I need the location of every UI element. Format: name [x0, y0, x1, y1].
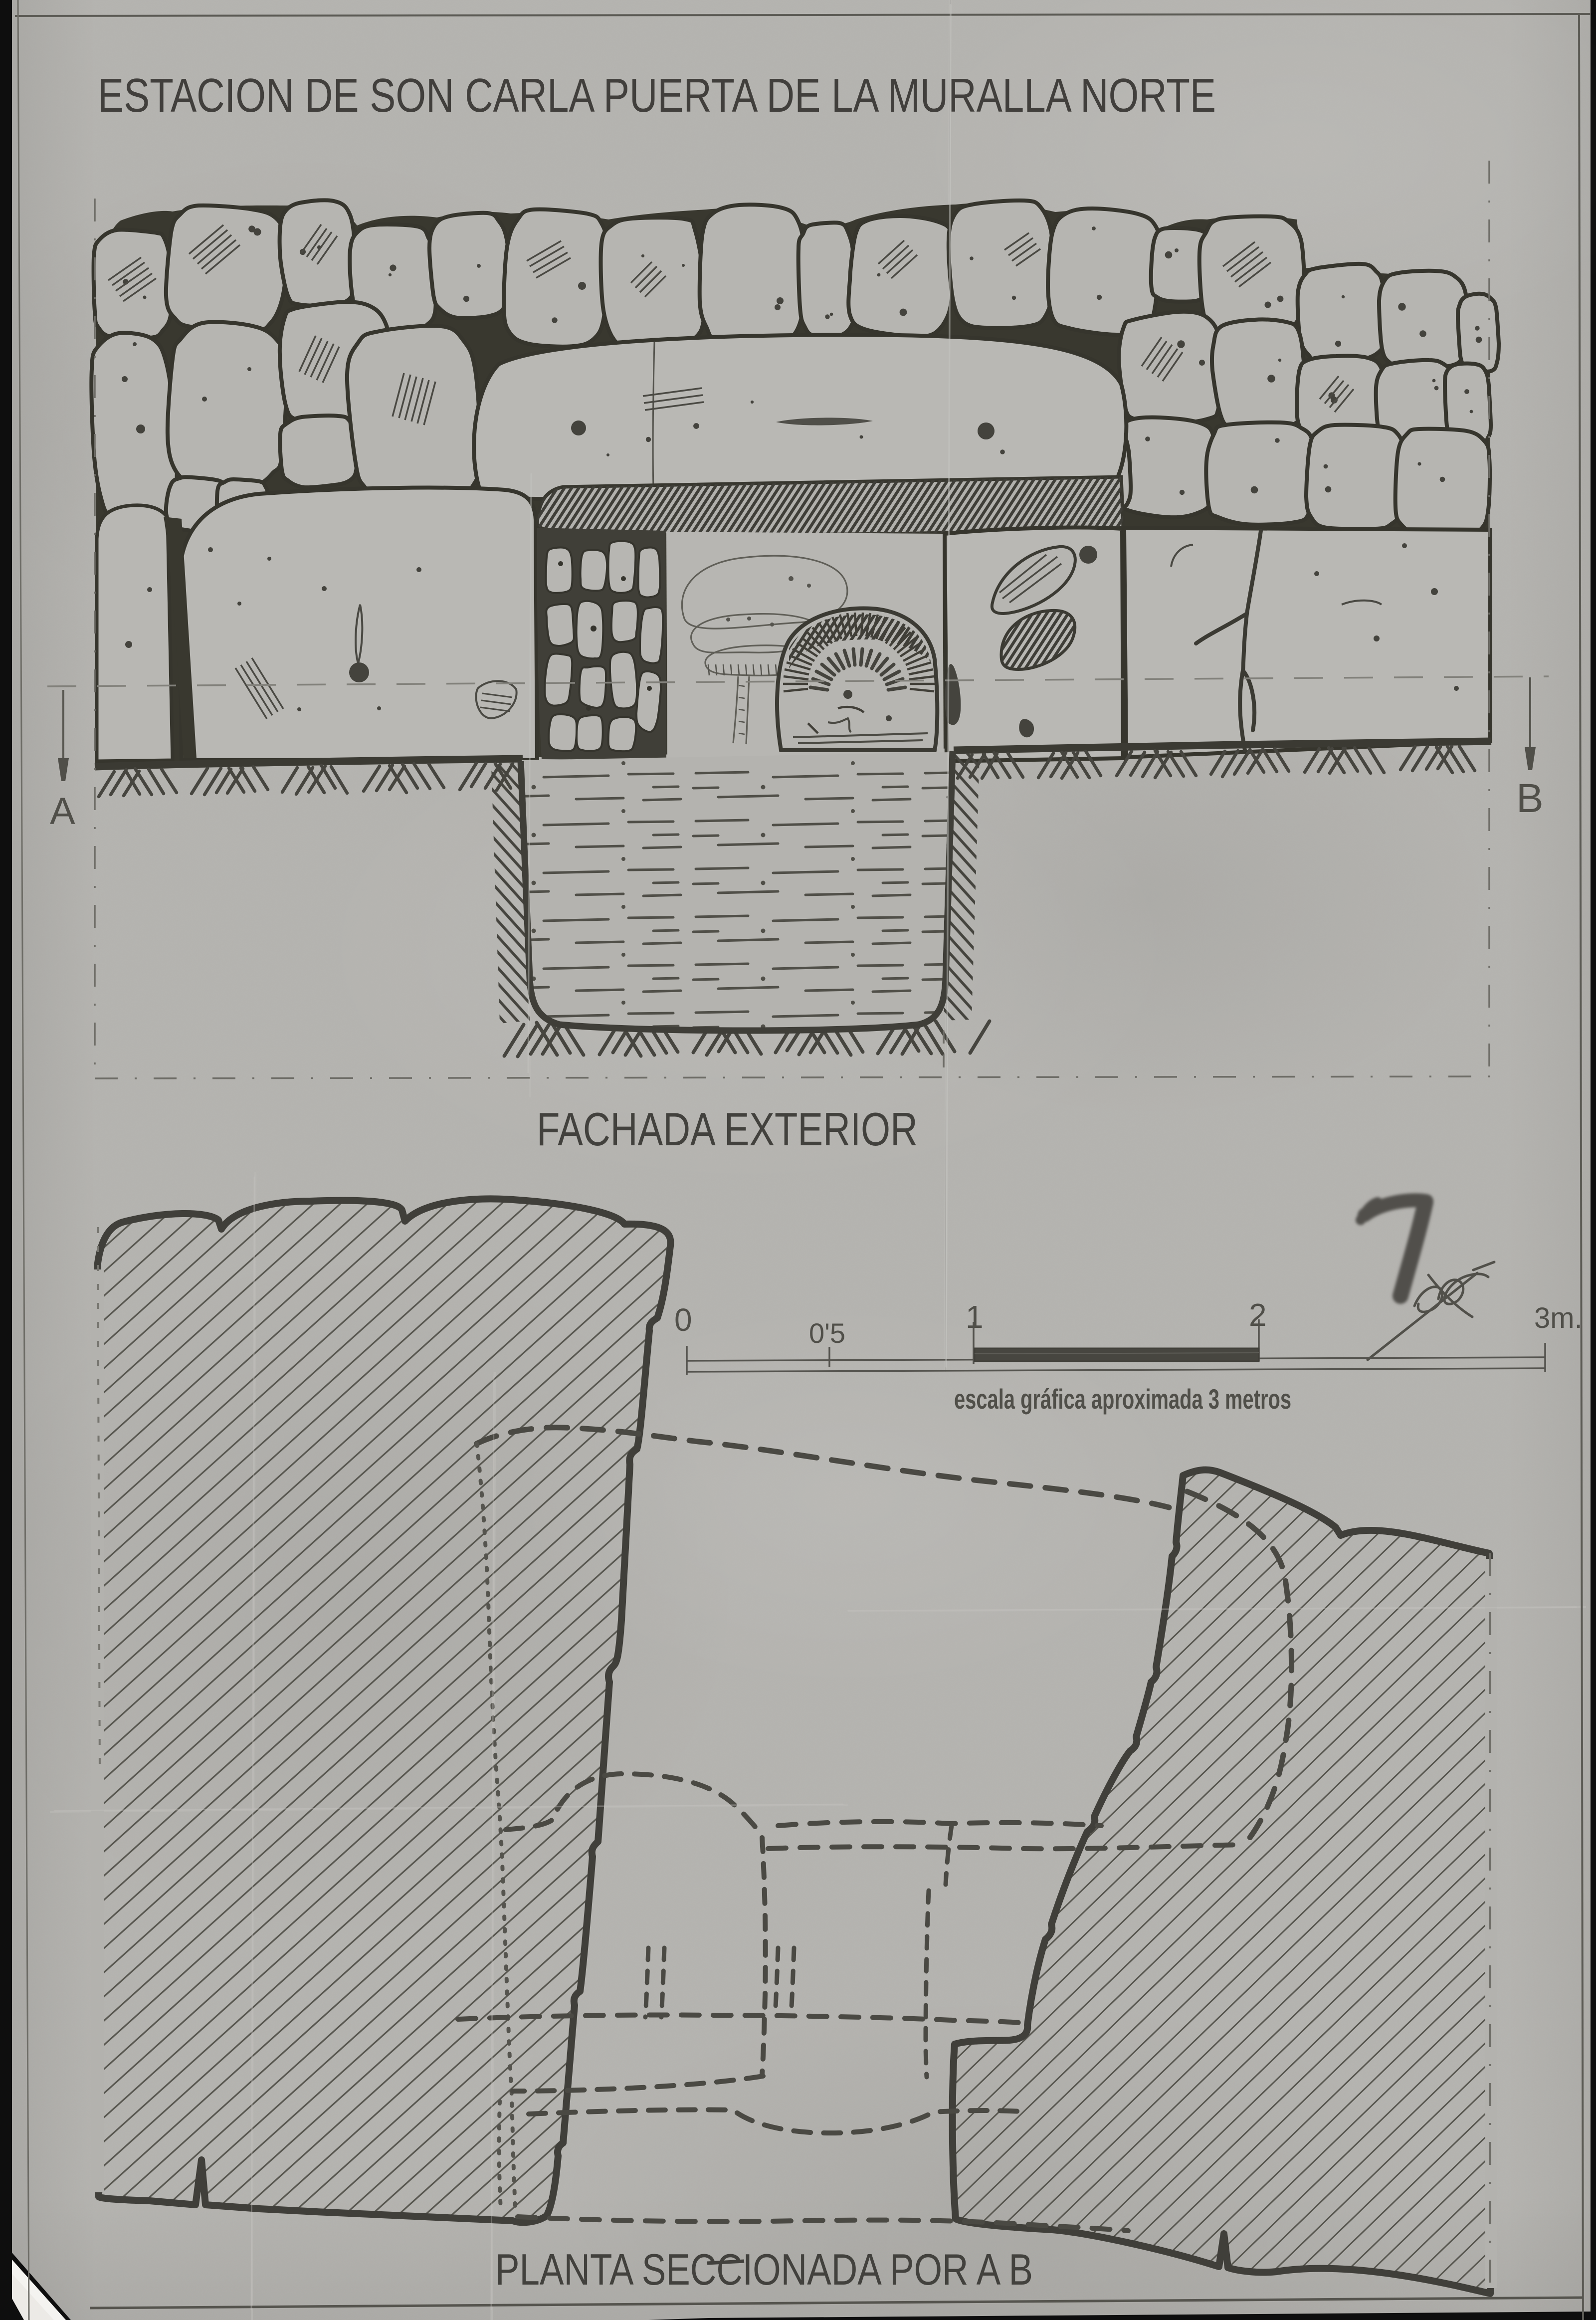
svg-text:PLANTA SECCIONADA POR A B: PLANTA SECCIONADA POR A B	[495, 2245, 1033, 2294]
svg-text:ESTACION DE SON CARLA PUERTA D: ESTACION DE SON CARLA PUERTA DE LA MURAL…	[98, 69, 1216, 122]
svg-text:FACHADA EXTERIOR: FACHADA EXTERIOR	[537, 1103, 918, 1155]
svg-text:0'5: 0'5	[809, 1317, 845, 1349]
svg-text:3m.: 3m.	[1534, 1302, 1583, 1334]
svg-text:0: 0	[674, 1302, 692, 1338]
svg-text:1: 1	[966, 1299, 984, 1335]
svg-text:B: B	[1516, 776, 1544, 821]
svg-text:escala gráfica aproximada 3 me: escala gráfica aproximada 3 metros	[954, 1383, 1291, 1415]
svg-text:2: 2	[1249, 1297, 1267, 1333]
svg-text:A: A	[50, 790, 75, 833]
